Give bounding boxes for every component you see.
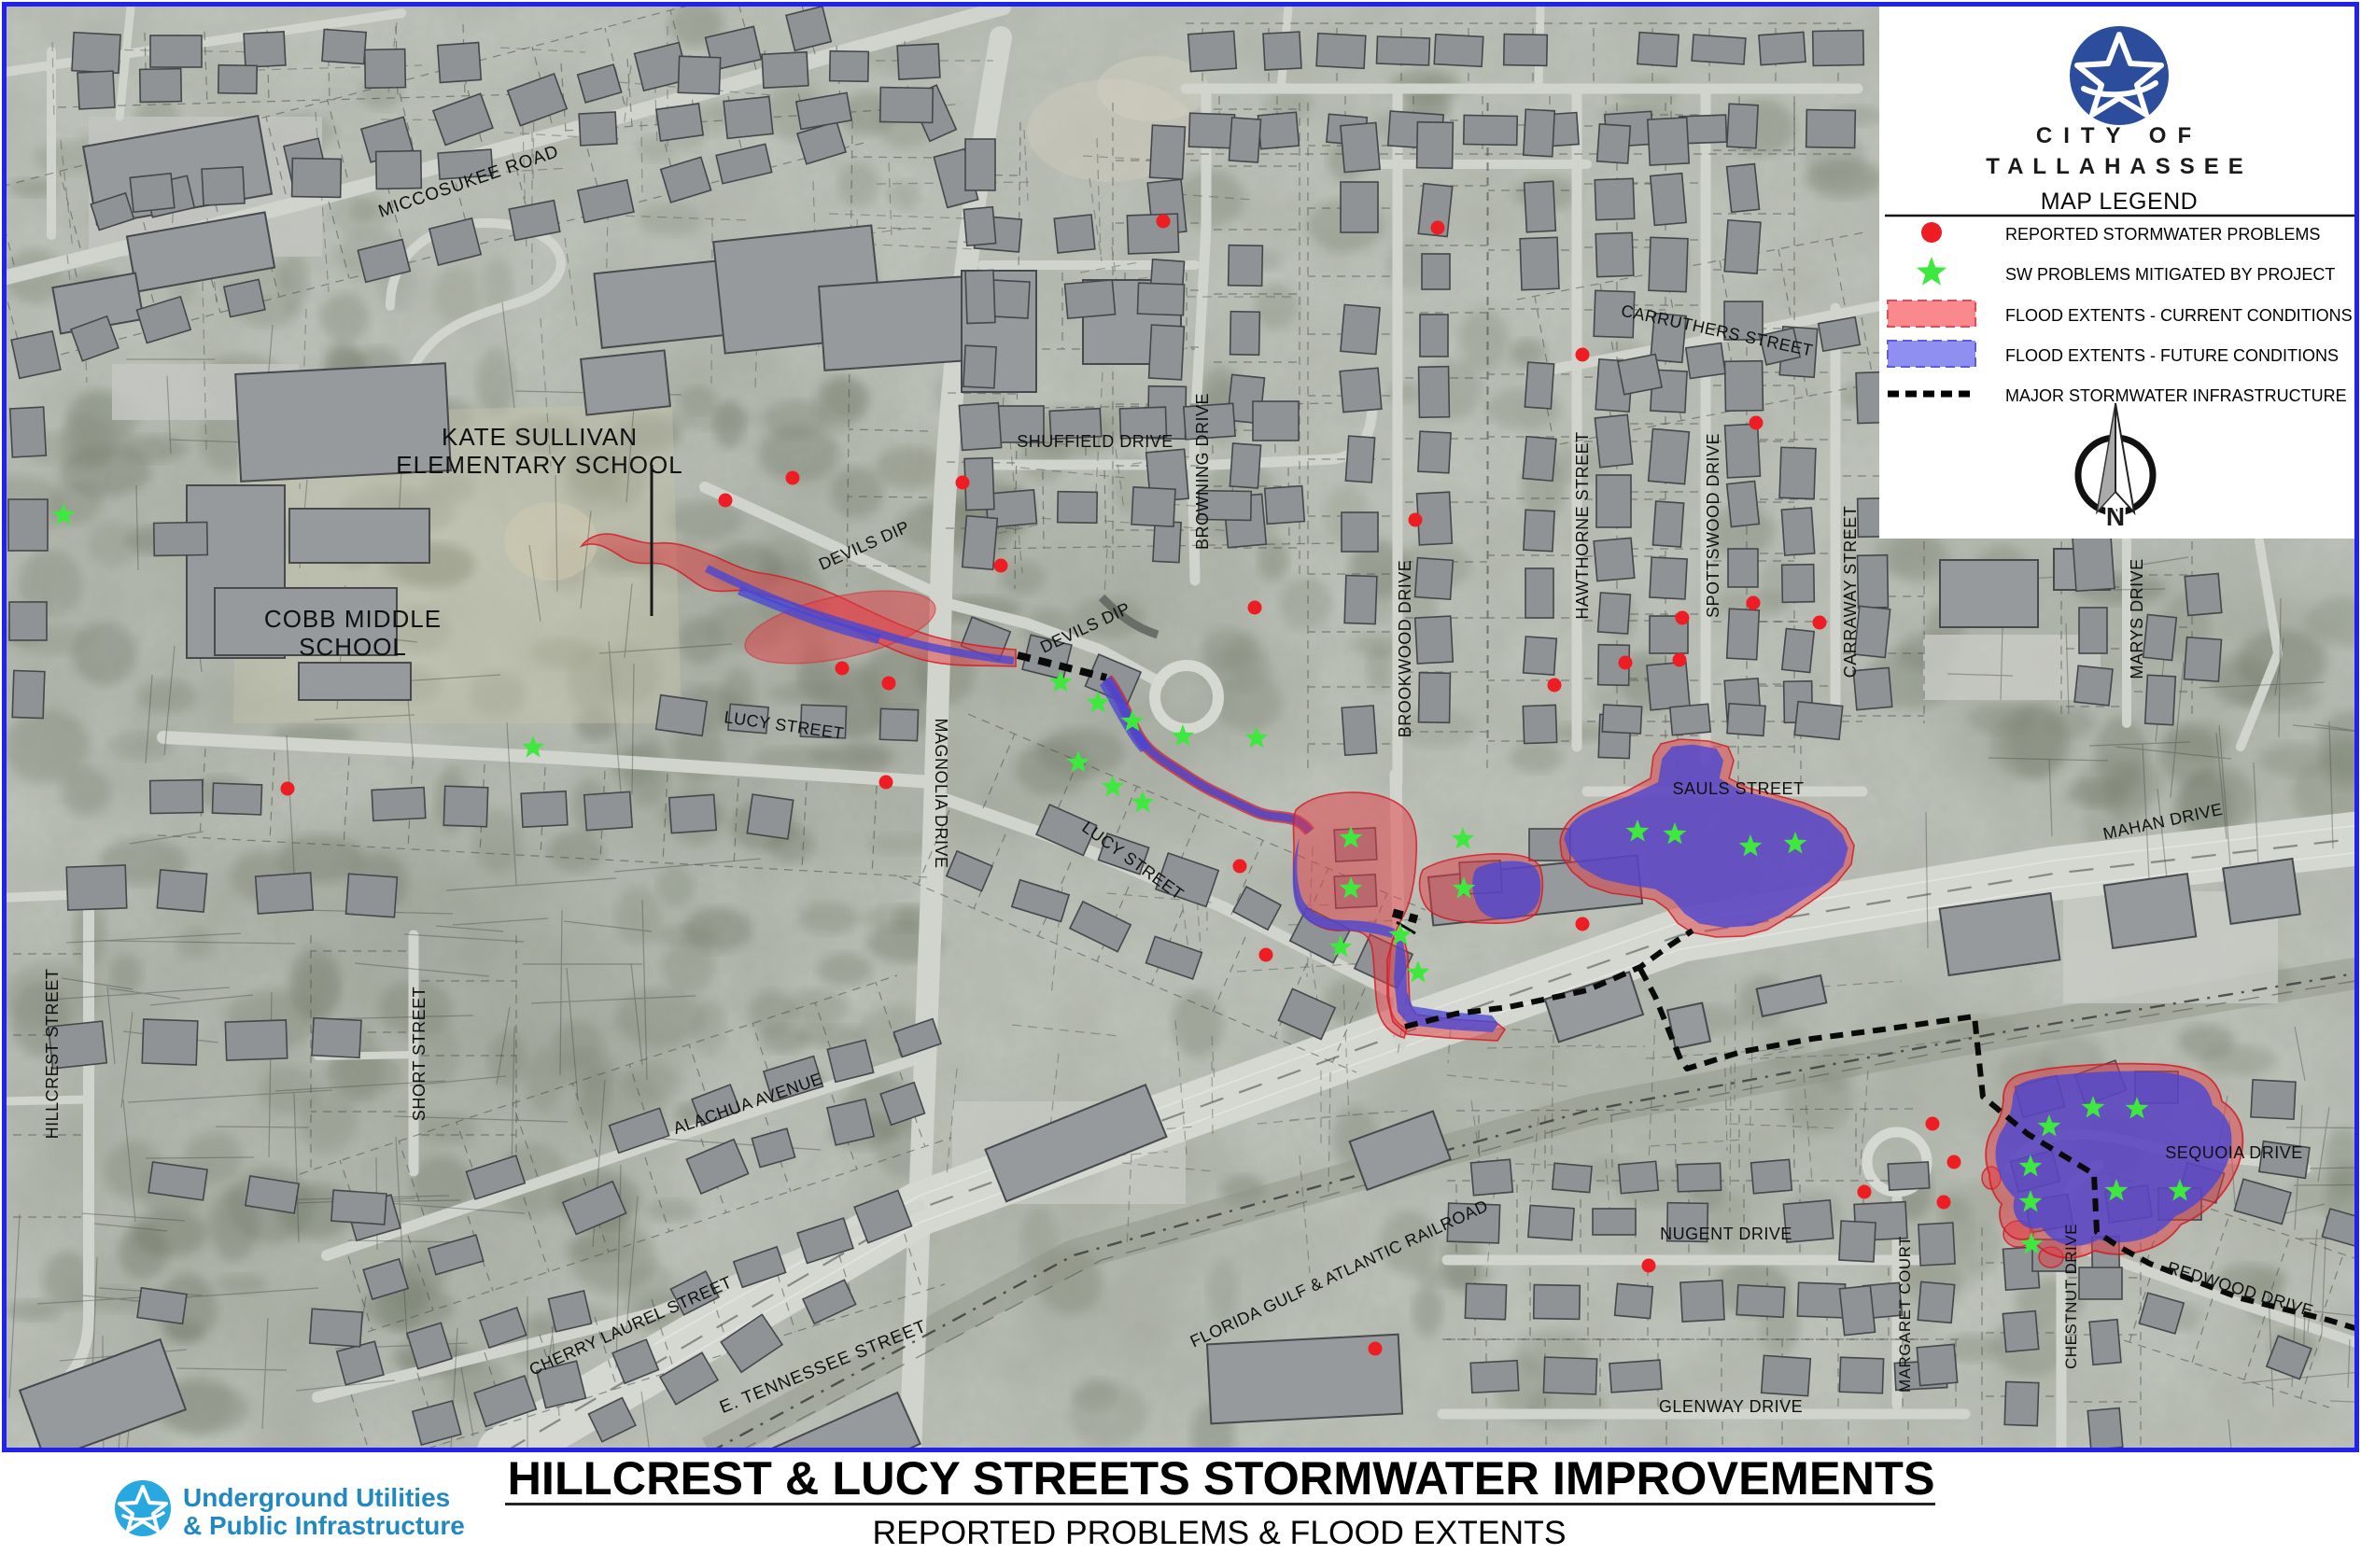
svg-text:SEQUOIA DRIVE: SEQUOIA DRIVE [2165,1143,2303,1162]
svg-text:MAJOR STORMWATER INFRASTRUCTUR: MAJOR STORMWATER INFRASTRUCTURE [2005,386,2347,405]
svg-text:MARGARET COURT: MARGARET COURT [1896,1236,1914,1393]
svg-text:N: N [2106,502,2125,531]
svg-text:NUGENT DRIVE: NUGENT DRIVE [1660,1225,1792,1243]
svg-text:KATE SULLIVAN: KATE SULLIVAN [442,423,638,451]
svg-text:REPORTED STORMWATER PROBLEMS: REPORTED STORMWATER PROBLEMS [2005,225,2320,244]
svg-text:SPOTTSWOOD DRIVE: SPOTTSWOOD DRIVE [1704,433,1722,618]
svg-text:TALLAHASSEE: TALLAHASSEE [1986,154,2253,179]
svg-text:BROWNING DRIVE: BROWNING DRIVE [1193,393,1212,550]
svg-text:HAWTHORNE STREET: HAWTHORNE STREET [1573,431,1592,619]
svg-text:SAULS STREET: SAULS STREET [1672,779,1804,798]
svg-text:SW PROBLEMS MITIGATED BY PROJE: SW PROBLEMS MITIGATED BY PROJECT [2005,265,2335,284]
svg-text:BROOKWOOD DRIVE: BROOKWOOD DRIVE [1396,560,1414,738]
svg-text:COBB MIDDLE: COBB MIDDLE [264,605,442,633]
svg-text:SHORT STREET: SHORT STREET [410,987,429,1121]
svg-text:CITY OF: CITY OF [2036,123,2202,148]
svg-text:FLOOD EXTENTS - CURRENT CONDIT: FLOOD EXTENTS - CURRENT CONDITIONS [2005,306,2353,325]
svg-text:MARYS DRIVE: MARYS DRIVE [2128,558,2146,679]
svg-text:ELEMENTARY SCHOOL: ELEMENTARY SCHOOL [396,451,682,479]
svg-text:FLOOD EXTENTS - FUTURE CONDITI: FLOOD EXTENTS - FUTURE CONDITIONS [2005,346,2339,365]
svg-text:CHESTNUT DRIVE: CHESTNUT DRIVE [2062,1224,2080,1369]
svg-text:MAGNOLIA DRIVE: MAGNOLIA DRIVE [932,718,950,868]
svg-text:CARRAWAY STREET: CARRAWAY STREET [1841,506,1860,679]
svg-text:MAP LEGEND: MAP LEGEND [2041,189,2198,215]
svg-text:HILLCREST STREET: HILLCREST STREET [43,969,62,1140]
svg-text:SCHOOL: SCHOOL [299,633,407,661]
svg-text:GLENWAY DRIVE: GLENWAY DRIVE [1659,1397,1803,1416]
svg-text:SHUFFIELD DRIVE: SHUFFIELD DRIVE [1017,432,1173,451]
